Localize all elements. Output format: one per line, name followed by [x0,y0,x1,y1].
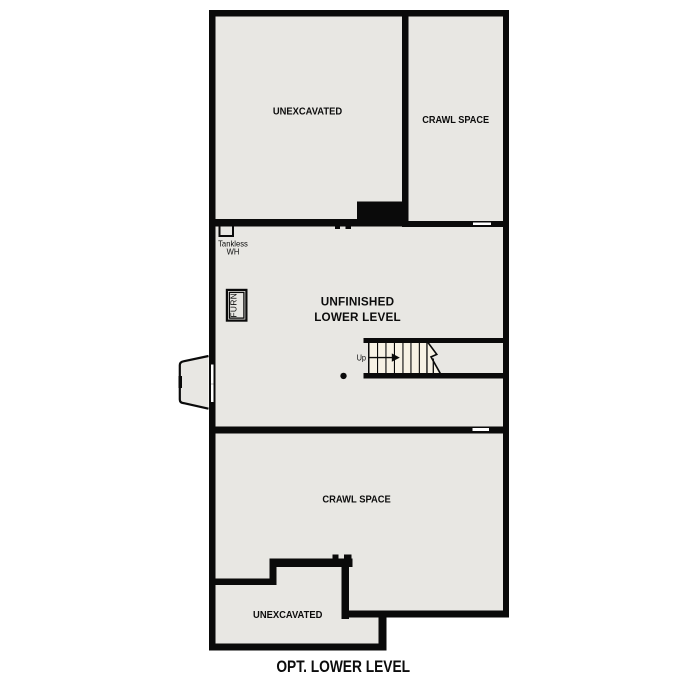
svg-text:UNEXCAVATED: UNEXCAVATED [273,106,342,117]
svg-text:Up: Up [357,353,367,363]
svg-text:WH: WH [227,247,240,257]
svg-text:UNFINISHED: UNFINISHED [321,296,394,309]
svg-text:CRAWL SPACE: CRAWL SPACE [322,494,391,505]
svg-text:LOWER LEVEL: LOWER LEVEL [314,311,401,324]
svg-text:UNEXCAVATED: UNEXCAVATED [253,609,322,620]
svg-text:FURN: FURN [229,293,239,318]
svg-text:CRAWL SPACE: CRAWL SPACE [422,115,489,127]
svg-text:OPT. LOWER LEVEL: OPT. LOWER LEVEL [276,658,410,676]
